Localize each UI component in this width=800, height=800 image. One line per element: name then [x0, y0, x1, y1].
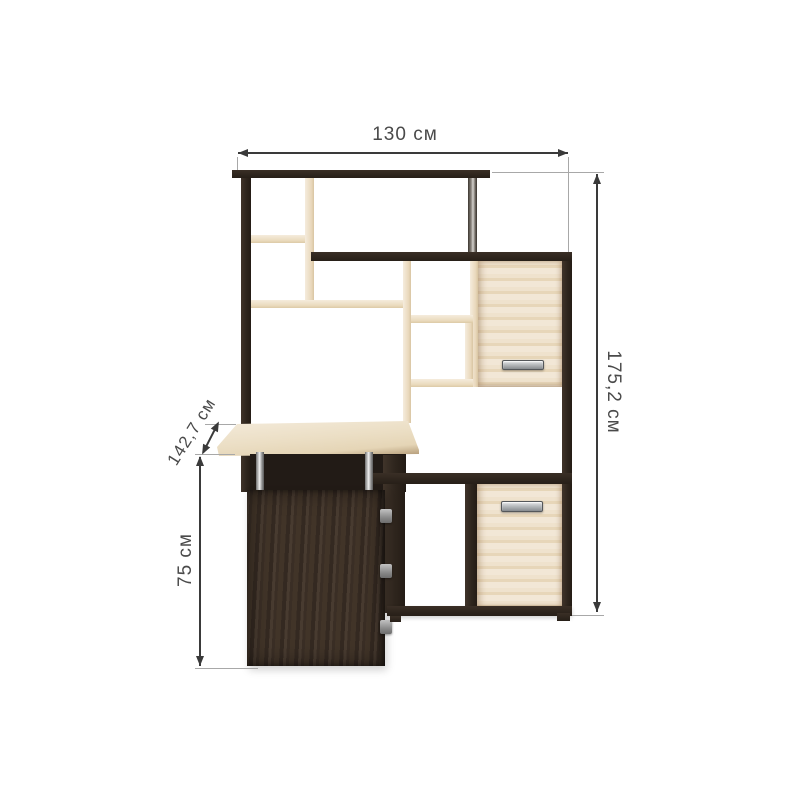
dim-height-label: 175,2 см [602, 332, 624, 452]
dim-depth-arrow-high [211, 420, 223, 433]
foot-left [390, 616, 401, 622]
upper-cabinet-handle [502, 360, 544, 370]
dim-height-arrow-bottom [593, 602, 601, 612]
desk-leg-right [365, 452, 373, 492]
pedestal-hinge-bottom [380, 620, 392, 634]
dim-height-extension-top [492, 172, 604, 173]
shelf-long-light [251, 300, 408, 308]
dim-desk-height-label: 75 см [175, 520, 197, 600]
pedestal-hinge-middle [380, 564, 392, 578]
pedestal-cabinet [247, 490, 385, 666]
dim-desk-height-line [199, 457, 201, 666]
lower-divider [465, 484, 477, 608]
shelf-box-side [465, 323, 473, 379]
lower-cabinet-handle [501, 501, 543, 512]
dim-desk-height-extension-bottom [195, 668, 258, 669]
middle-dark-shelf [311, 252, 572, 261]
shelf-divider-middle [403, 261, 411, 423]
foot-right [557, 613, 570, 621]
dim-desk-height-arrow-top [196, 456, 204, 466]
dim-height-arrow-top [593, 174, 601, 184]
dim-height-line [596, 174, 598, 612]
dim-desk-height-arrow-bottom [196, 656, 204, 666]
lower-dark-shelf [373, 473, 572, 484]
shelf-box-bottom [411, 379, 473, 387]
shelf-divider-top-left [305, 178, 314, 303]
top-shelf [232, 170, 490, 178]
dim-depth-label: 142,7 см [158, 387, 225, 477]
pedestal-hinge-top [380, 509, 392, 523]
dim-width-extension-left [237, 157, 238, 170]
dim-width-label: 130 см [330, 124, 480, 146]
shelf-box-top [411, 315, 473, 323]
product-image: 130 см 175,2 см 75 см 142,7 см [0, 0, 800, 800]
desk-top [215, 420, 421, 457]
dim-width-line [238, 152, 568, 154]
base-bar [387, 606, 572, 616]
dim-width-arrow-left [238, 149, 248, 157]
dim-height-extension-bottom [572, 615, 604, 616]
metal-strut [468, 178, 477, 252]
shelf-small-upper [251, 235, 305, 243]
dim-width-arrow-right [558, 149, 568, 157]
right-upright [562, 261, 572, 613]
desk-leg-left [256, 452, 264, 492]
